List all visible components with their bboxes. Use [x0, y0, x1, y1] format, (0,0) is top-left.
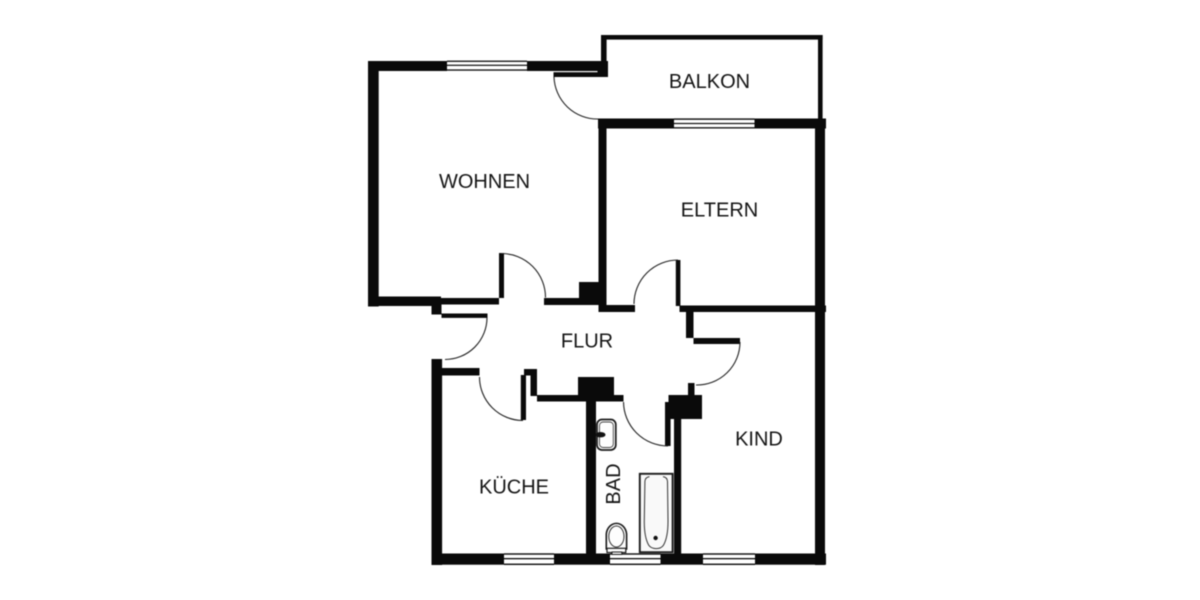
svg-text:BAD: BAD: [603, 463, 625, 504]
svg-text:ELTERN: ELTERN: [681, 200, 758, 222]
svg-text:WOHNEN: WOHNEN: [439, 171, 530, 193]
svg-text:FLUR: FLUR: [561, 331, 613, 353]
svg-text:BALKON: BALKON: [669, 71, 750, 93]
svg-text:KIND: KIND: [735, 429, 783, 451]
svg-text:KÜCHE: KÜCHE: [479, 477, 549, 499]
